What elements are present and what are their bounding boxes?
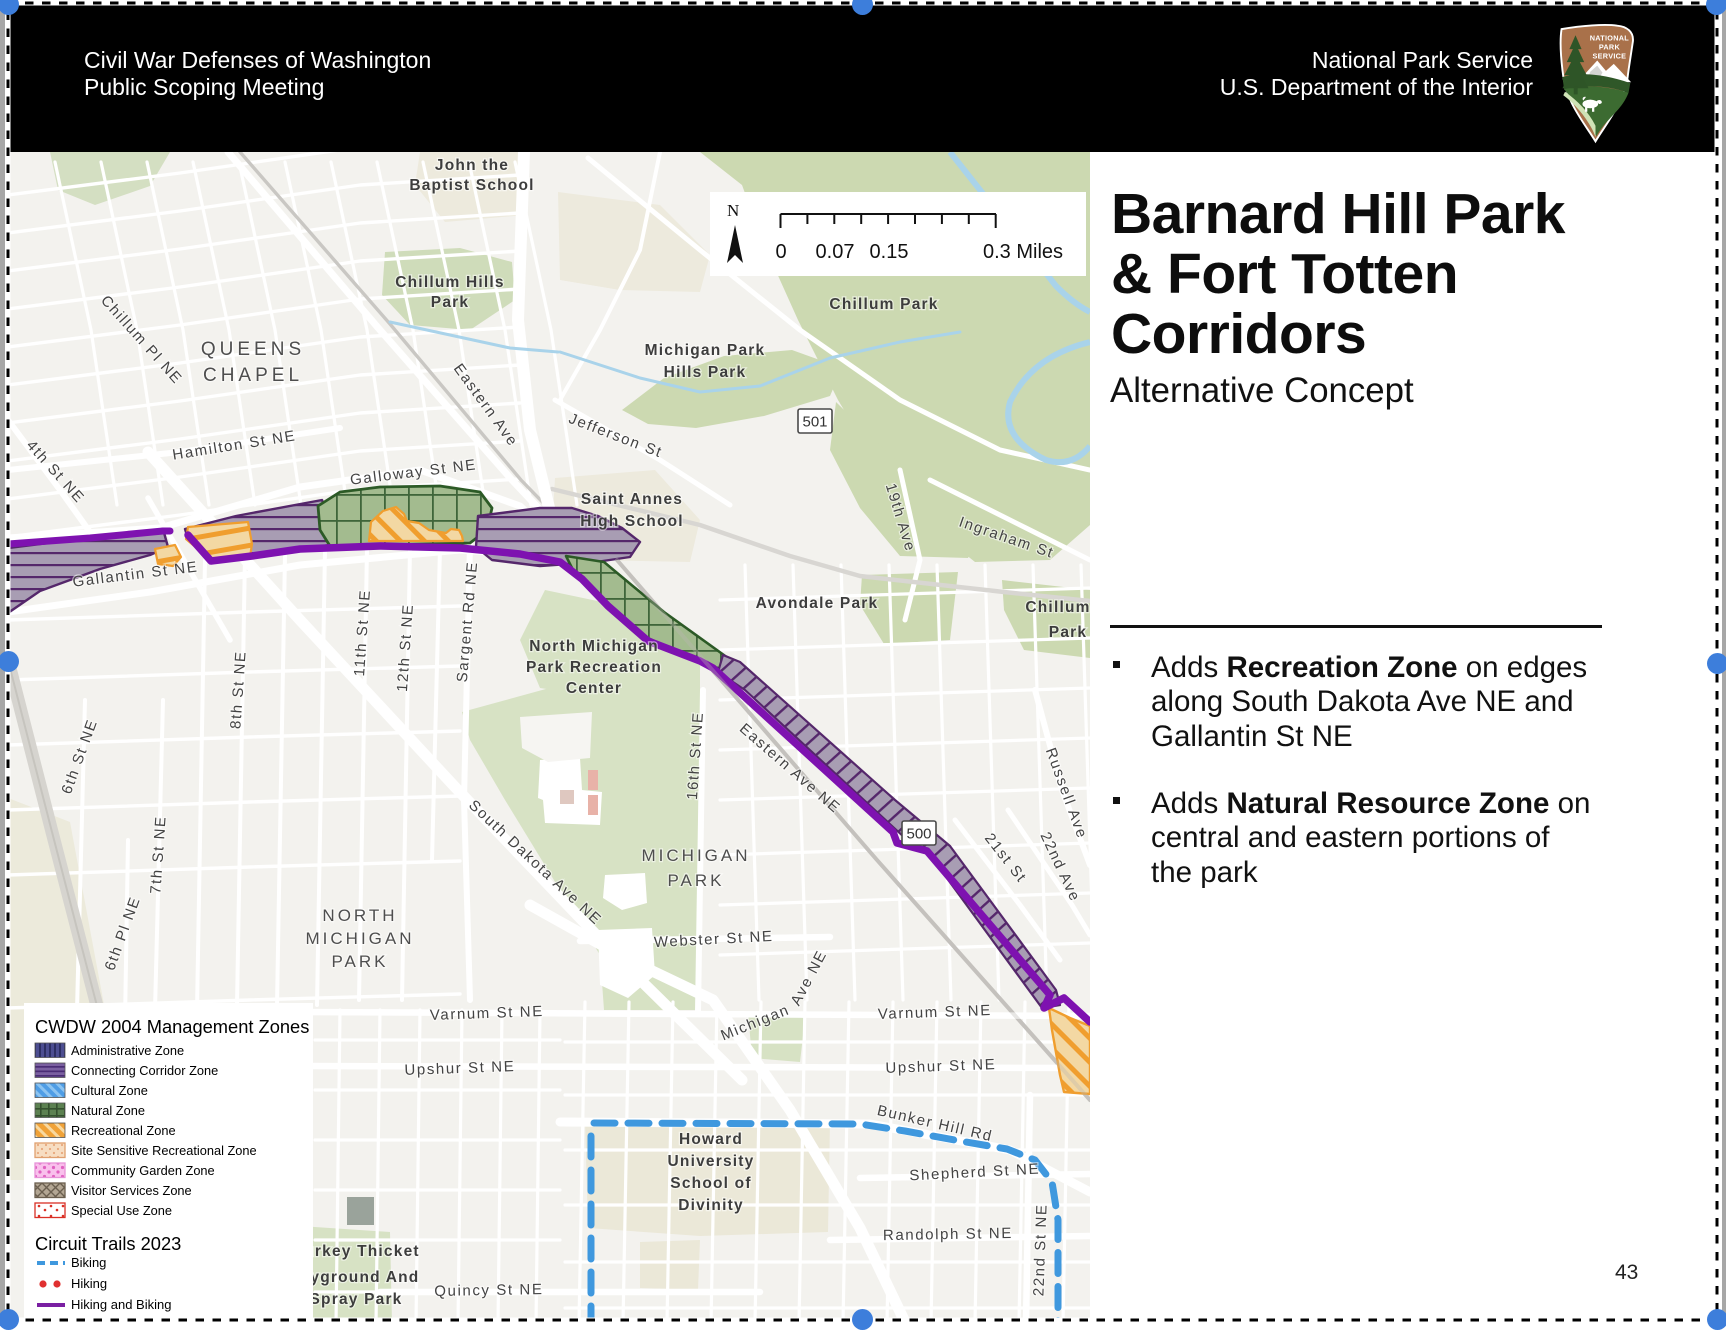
svg-text:Chillum Park: Chillum Park bbox=[829, 296, 938, 313]
svg-text:Recreational Zone: Recreational Zone bbox=[71, 1123, 176, 1138]
svg-text:0.3 Miles: 0.3 Miles bbox=[983, 241, 1063, 263]
svg-text:Cultural Zone: Cultural Zone bbox=[71, 1083, 148, 1098]
svg-text:0.15: 0.15 bbox=[870, 241, 909, 263]
svg-text:501: 501 bbox=[802, 414, 827, 431]
svg-text:University: University bbox=[668, 1153, 755, 1170]
svg-text:MICHIGAN: MICHIGAN bbox=[642, 846, 751, 865]
svg-text:Saint Annes: Saint Annes bbox=[581, 491, 683, 508]
svg-text:N: N bbox=[727, 201, 739, 220]
svg-text:Site Sensitive Recreational Zo: Site Sensitive Recreational Zone bbox=[71, 1143, 257, 1158]
svg-text:Randolph St NE: Randolph St NE bbox=[883, 1225, 1013, 1244]
svg-text:22nd St NE: 22nd St NE bbox=[1030, 1203, 1050, 1296]
svg-text:School of: School of bbox=[670, 1175, 751, 1192]
svg-text:Biking: Biking bbox=[71, 1255, 106, 1270]
svg-text:500: 500 bbox=[906, 826, 931, 843]
svg-text:Quincy St NE: Quincy St NE bbox=[434, 1281, 544, 1300]
svg-text:NATIONAL: NATIONAL bbox=[1590, 33, 1630, 42]
svg-text:Howard: Howard bbox=[679, 1131, 743, 1148]
svg-text:Park Recreation: Park Recreation bbox=[526, 659, 662, 676]
svg-text:PARK: PARK bbox=[667, 871, 724, 890]
svg-text:MICHIGAN: MICHIGAN bbox=[306, 929, 415, 948]
svg-text:Chillum Hills: Chillum Hills bbox=[395, 274, 504, 291]
svg-text:Baptist School: Baptist School bbox=[409, 177, 534, 194]
svg-text:Hiking and Biking: Hiking and Biking bbox=[71, 1297, 171, 1312]
svg-text:North Michigan: North Michigan bbox=[529, 638, 659, 655]
svg-text:Connecting Corridor Zone: Connecting Corridor Zone bbox=[71, 1063, 218, 1078]
svg-text:Park: Park bbox=[431, 294, 469, 311]
svg-text:Chillum: Chillum bbox=[1025, 599, 1090, 616]
svg-text:Administrative Zone: Administrative Zone bbox=[71, 1043, 184, 1058]
svg-text:Community Garden Zone: Community Garden Zone bbox=[71, 1163, 215, 1178]
svg-text:Divinity: Divinity bbox=[678, 1197, 744, 1214]
svg-text:0: 0 bbox=[775, 241, 786, 263]
svg-text:QUEENS: QUEENS bbox=[201, 339, 305, 360]
svg-text:Special Use Zone: Special Use Zone bbox=[71, 1203, 172, 1218]
svg-text:John the: John the bbox=[435, 157, 509, 174]
svg-text:High School: High School bbox=[580, 513, 684, 530]
svg-text:PARK: PARK bbox=[1599, 43, 1621, 52]
svg-text:CHAPEL: CHAPEL bbox=[203, 365, 303, 386]
svg-text:PARK: PARK bbox=[331, 952, 388, 971]
svg-text:0.07: 0.07 bbox=[816, 241, 855, 263]
svg-text:NORTH: NORTH bbox=[322, 906, 397, 925]
svg-text:Michigan Park: Michigan Park bbox=[645, 342, 766, 359]
svg-text:Visitor Services Zone: Visitor Services Zone bbox=[71, 1183, 192, 1198]
svg-text:CWDW 2004 Management Zones: CWDW 2004 Management Zones bbox=[35, 1016, 309, 1037]
svg-text:Hills Park: Hills Park bbox=[664, 364, 747, 381]
svg-text:SERVICE: SERVICE bbox=[1593, 52, 1627, 61]
svg-text:Park: Park bbox=[1049, 624, 1087, 641]
svg-text:Natural Zone: Natural Zone bbox=[71, 1103, 145, 1118]
svg-text:Hiking: Hiking bbox=[71, 1276, 107, 1291]
svg-text:Center: Center bbox=[566, 680, 622, 697]
svg-text:Circuit Trails 2023: Circuit Trails 2023 bbox=[35, 1233, 181, 1254]
svg-text:Avondale Park: Avondale Park bbox=[756, 595, 879, 612]
